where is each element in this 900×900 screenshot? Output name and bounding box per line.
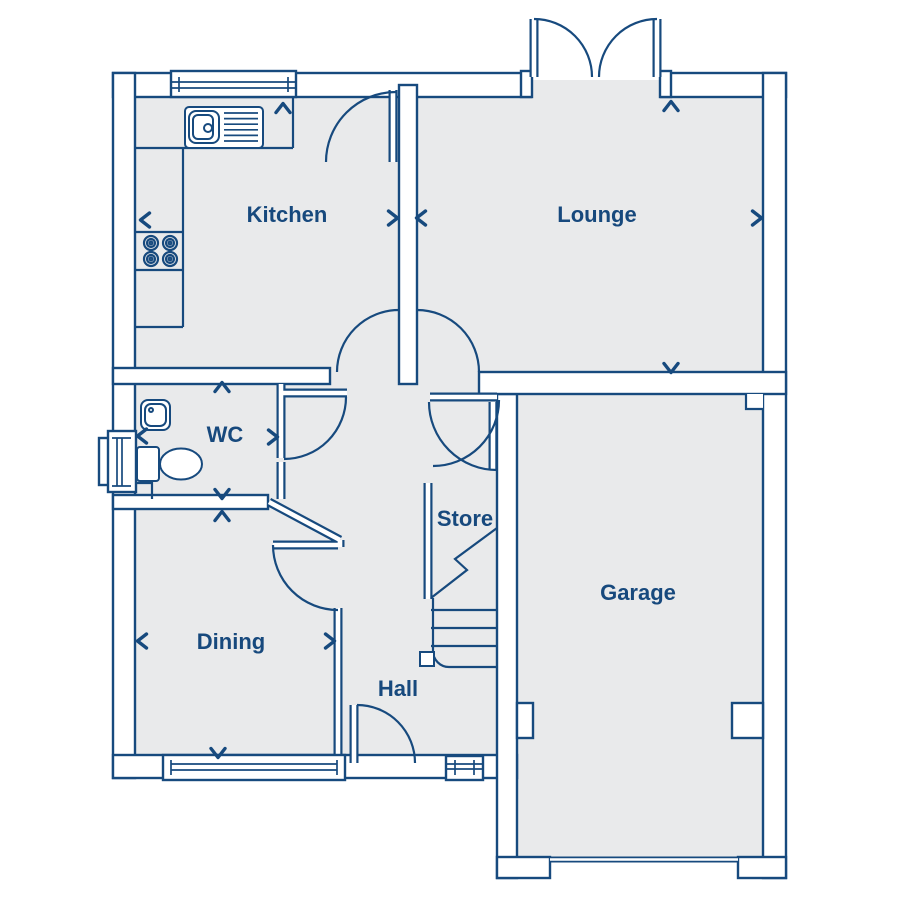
stair-newel-post [420, 652, 434, 666]
room-floor-hall-wc-dining [135, 384, 497, 755]
floor-fills [135, 80, 763, 858]
garage-recess-left [517, 703, 533, 738]
room-label-hall: Hall [378, 676, 418, 701]
sink-icon [185, 107, 263, 148]
window-hall [446, 756, 483, 780]
room-label-wc: WC [207, 422, 244, 447]
kitchen-door-opening [330, 368, 399, 384]
wall-left [113, 73, 135, 778]
room-floor-lounge [417, 97, 763, 374]
basin-icon [141, 400, 170, 430]
wall-lounge-garage [479, 372, 786, 394]
wall-dining-top [113, 495, 268, 509]
window-dining [163, 755, 345, 780]
floorplan-canvas: Kitchen Lounge WC Dining Hall Store Gara… [0, 0, 900, 900]
room-floor-kitchen [135, 97, 399, 370]
wall-right [763, 73, 786, 878]
lounge-door-opening [417, 372, 479, 394]
window-kitchen [171, 71, 296, 97]
wall-garage-left [497, 394, 517, 878]
wall-garage-bottom-right [738, 857, 786, 878]
garage-recess-right [732, 703, 763, 738]
french-door-jamb-right [660, 71, 671, 97]
french-door-threshold [533, 80, 659, 97]
french-doors-icon [534, 19, 657, 77]
garage-corner-notch [746, 394, 763, 409]
window-wc [108, 431, 136, 492]
room-floor-garage [517, 394, 763, 858]
room-label-lounge: Lounge [557, 202, 636, 227]
floorplan-svg: Kitchen Lounge WC Dining Hall Store Gara… [0, 0, 900, 900]
room-label-store: Store [437, 506, 493, 531]
wall-garage-bottom-left [497, 857, 550, 878]
toilet-icon [137, 447, 202, 481]
room-label-kitchen: Kitchen [247, 202, 328, 227]
room-label-dining: Dining [197, 629, 265, 654]
wall-kitchen-lounge-divider [399, 85, 417, 384]
room-label-garage: Garage [600, 580, 676, 605]
